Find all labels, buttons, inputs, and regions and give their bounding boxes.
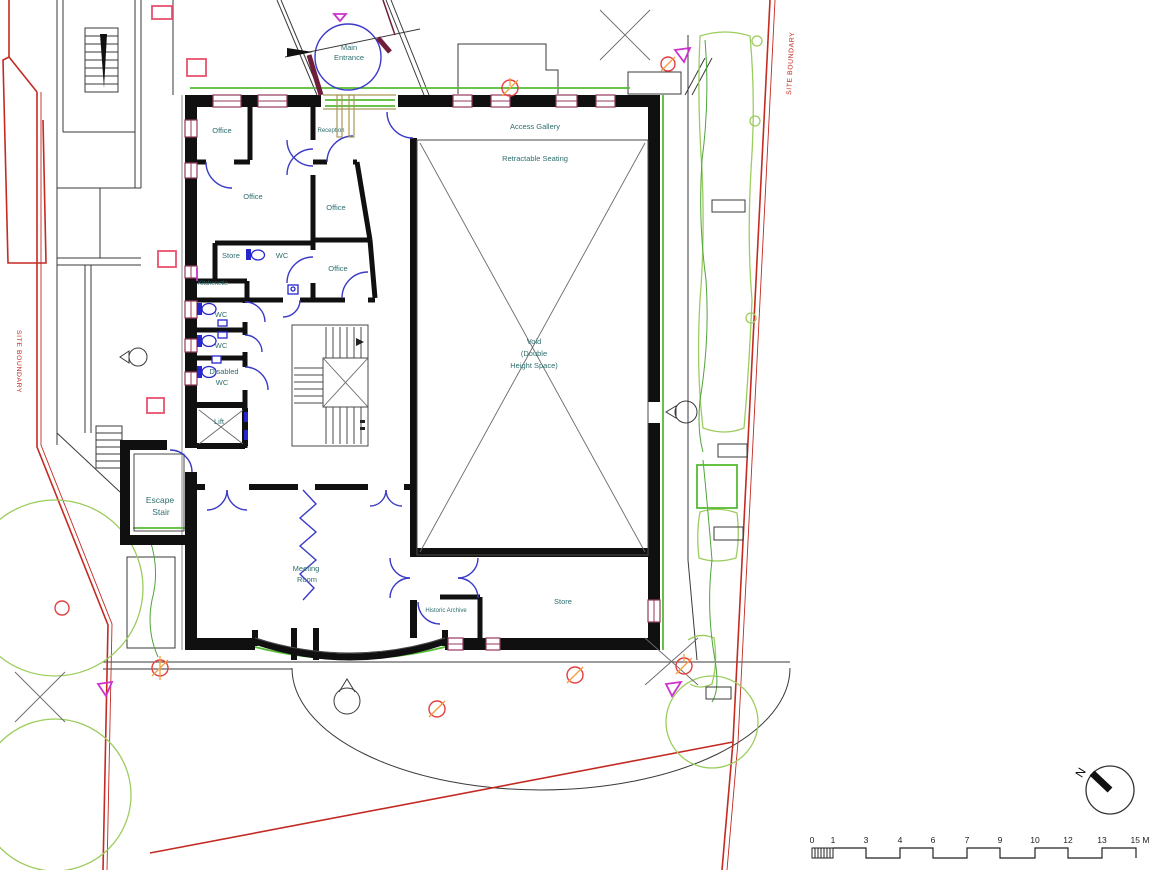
scale-tick-6: 6 [931,835,936,845]
toilet [197,335,216,347]
window [448,638,463,650]
main-entrance-group [197,0,420,281]
label-wc-1: WC [215,310,228,319]
label-void-3: Height Space) [510,361,558,370]
scale-tick-9: 9 [998,835,1003,845]
window [486,638,500,650]
level-marker [502,78,518,96]
lawn-square [697,465,737,508]
scale-tick-15m: 15 M [1131,835,1150,845]
benchmark-symbol [334,14,346,21]
window [185,266,197,278]
label-escape-stair-1: Escape [146,495,175,505]
glazed-screen-post [349,95,354,137]
toilet [246,249,265,260]
level-marker [429,701,445,717]
window [185,163,197,178]
wall-west-lower [185,472,197,650]
forecourt-semicircle [292,668,790,790]
setting-out-square [187,59,206,76]
wall-bottom-east [445,638,660,650]
station-cross [15,672,65,722]
bollard-marker-west [129,348,147,366]
curved-bay-wall [255,641,445,657]
level-marker [152,656,168,680]
label-store-small: Store [222,251,240,260]
tree-outline-se [666,676,758,768]
window [185,120,197,137]
label-reception: Reception [317,128,344,134]
window [213,95,241,107]
north-label: N [1072,765,1088,780]
setting-out-square [147,398,164,413]
label-historic-archive: Historic Archive [425,608,467,614]
scale-tick-0: 0 [810,835,815,845]
toilet [197,303,216,315]
label-office-mid: Office [326,203,345,212]
label-lift: Lift [214,417,225,426]
stair-arrow [356,338,364,346]
scale-tick-1: 1 [831,835,836,845]
scale-tick-10: 10 [1030,835,1040,845]
main-staircase [292,325,368,446]
label-escape-stair-2: Stair [152,507,170,517]
label-retractable-seating: Retractable Seating [502,154,568,163]
label-meeting-room-1: Meeting [293,564,320,573]
label-void-2: (Double [521,349,547,358]
station-cross [600,10,650,60]
survey-triangle [666,682,681,696]
scale-tick-7: 7 [965,835,970,845]
north-arrow-needle [1092,773,1110,790]
window [258,95,287,107]
window [648,600,660,622]
label-meeting-room-2: Room [297,575,317,584]
survey-triangle [98,682,112,696]
setting-out-square [152,6,172,19]
survey-markers [15,6,698,722]
interior-partitions [185,107,660,638]
label-disabled-wc-1: Disabled [209,367,238,376]
scale-tick-13: 13 [1097,835,1107,845]
sink [288,285,298,294]
level-marker [661,57,675,71]
label-store-large: Store [554,597,572,606]
window [556,95,577,107]
setting-out-square [158,251,176,267]
window [185,301,197,318]
label-office-nw: Office [212,126,231,135]
scale-bar-wave [833,848,1136,858]
window [453,95,472,107]
bollard-marker-east [675,401,697,423]
level-marker [676,654,692,674]
scale-tick-4: 4 [898,835,903,845]
site-boundary-label-left: SITE BOUNDARY [15,330,22,393]
wall-east-upper [648,95,660,398]
label-void-1: Void [527,337,542,346]
window [596,95,615,107]
wall-top-east [398,95,660,107]
label-wc-2: WC [215,341,228,350]
window [185,339,197,352]
site-boundary-label-right: SITE BOUNDARY [786,32,796,95]
label-main-entrance-1: Main [341,43,357,52]
scale-tick-12: 12 [1063,835,1073,845]
benches [706,200,747,699]
windows [185,95,660,650]
wall-bottom-west [185,638,255,650]
scale-tick-3: 3 [864,835,869,845]
label-access-gallery: Access Gallery [510,122,560,131]
window [185,372,197,385]
label-disabled-wc-2: WC [216,378,229,387]
stair-direction-arrow [100,34,107,88]
label-office-w: Office [243,192,262,201]
window [491,95,510,107]
void-cross-lines [420,143,645,552]
forecourt-feature [334,688,360,714]
scale-bar: 0 1 3 4 6 7 9 10 12 13 15 M [810,835,1150,858]
sink [212,356,221,363]
wall-top-west [185,95,321,107]
label-kitchenette: Kitchenette [198,281,229,287]
label-main-entrance-2: Entrance [334,53,364,62]
scale-bar-hatch [815,848,830,858]
hall-south-wall [410,548,660,557]
level-marker [567,667,583,683]
floor-plan-drawing: SITE BOUNDARY SITE BOUNDARY [0,0,1161,870]
label-office-s: Office [328,264,347,273]
north-arrow: N [1072,765,1134,814]
label-wc-upper: WC [276,251,289,260]
tree-outline-sw2 [0,719,131,870]
floor-plan-svg: SITE BOUNDARY SITE BOUNDARY [0,0,1161,870]
